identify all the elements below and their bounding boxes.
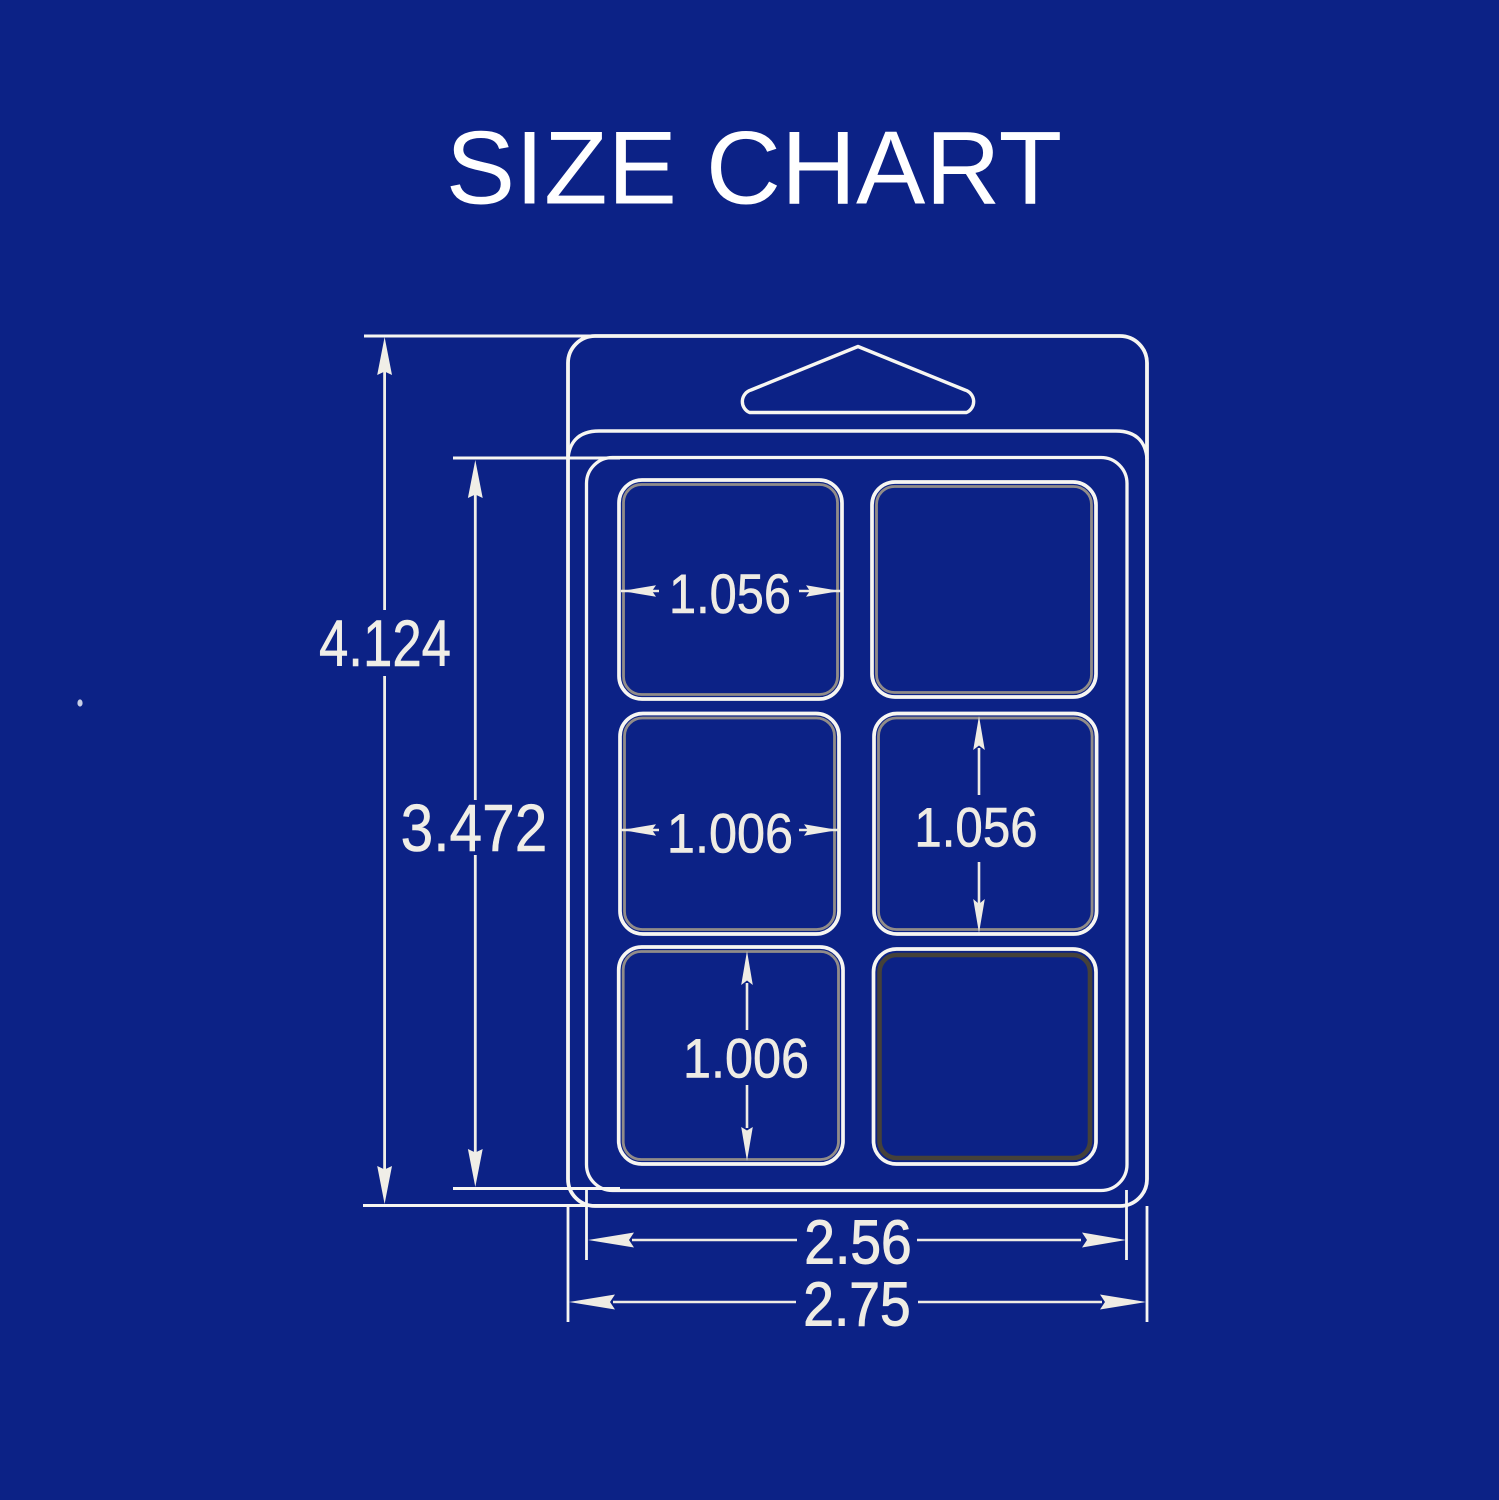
svg-text:3.472: 3.472: [401, 791, 548, 866]
svg-text:1.056: 1.056: [914, 797, 1037, 860]
svg-text:2.75: 2.75: [803, 1271, 910, 1340]
svg-text:SIZE CHART: SIZE CHART: [446, 111, 1062, 227]
svg-text:1.006: 1.006: [667, 803, 793, 865]
svg-text:2.56: 2.56: [804, 1209, 911, 1278]
svg-text:1.056: 1.056: [669, 563, 791, 626]
svg-text:1.006: 1.006: [683, 1028, 809, 1090]
svg-text:4.124: 4.124: [319, 606, 451, 680]
